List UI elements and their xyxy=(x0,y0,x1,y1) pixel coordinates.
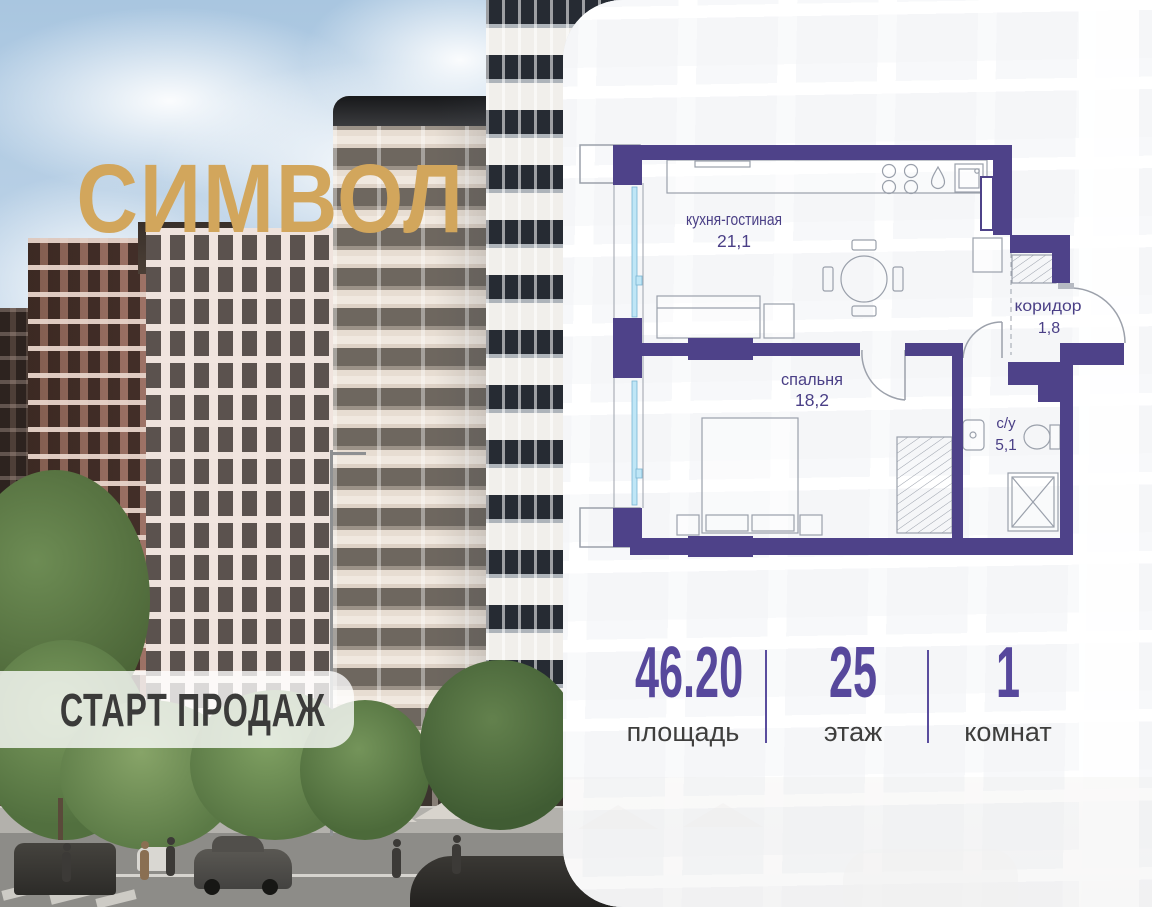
room-label-bathroom: с/у xyxy=(996,415,1016,432)
listing-card[interactable]: СИМВОЛ СТАРТ ПРОДАЖ xyxy=(0,0,1152,907)
stat-area-label: площадь xyxy=(603,717,763,748)
pedestrian xyxy=(452,844,461,874)
fridge-icon xyxy=(973,238,1002,272)
pedestrian xyxy=(392,848,401,878)
duct-shaft xyxy=(981,177,993,230)
stat-area-value: 46.20 xyxy=(635,645,731,701)
room-area-bathroom: 5,1 xyxy=(995,437,1017,454)
bed-icon xyxy=(702,418,798,533)
stat-rooms: 1 комнат xyxy=(928,645,1088,748)
nightstand-icon xyxy=(677,515,699,535)
start-sales-badge: СТАРТ ПРОДАЖ xyxy=(0,671,354,748)
stat-rooms-label: комнат xyxy=(928,717,1088,748)
room-label-bedroom: спальня xyxy=(781,371,843,389)
room-area-corridor: 1,8 xyxy=(1038,320,1060,337)
stat-floor: 25 этаж xyxy=(773,645,933,748)
pedestrian xyxy=(62,852,71,882)
floor-plan[interactable]: кухня-гостиная 21,1 спальня 18,2 коридор… xyxy=(578,138,1152,563)
stats-row: 46.20 площадь 25 этаж 1 комнат xyxy=(563,645,1123,755)
sofa-icon xyxy=(657,296,760,338)
sedan-car xyxy=(194,849,292,889)
room-area-bedroom: 18,2 xyxy=(795,390,829,410)
nightstand-icon xyxy=(800,515,822,535)
stat-floor-value: 25 xyxy=(805,645,901,701)
cooker-hood-icon xyxy=(695,161,750,167)
dining-table-icon xyxy=(841,256,887,302)
entrance-door-icon xyxy=(1073,288,1125,343)
hall-wardrobe-icon xyxy=(1012,255,1056,283)
pedestrian xyxy=(166,846,175,876)
stat-separator xyxy=(765,650,767,743)
start-sales-label: СТАРТ ПРОДАЖ xyxy=(60,683,326,737)
doors xyxy=(862,253,1125,400)
tree xyxy=(420,660,580,830)
bedroom-door-icon xyxy=(862,350,905,400)
toilet-icon xyxy=(1050,425,1060,449)
brand-logo: СИМВОЛ xyxy=(76,150,463,247)
side-table-icon xyxy=(764,304,794,338)
bath-sink-icon xyxy=(963,420,984,450)
stat-rooms-value: 1 xyxy=(960,645,1056,701)
tree-trunk xyxy=(58,798,63,840)
stat-area: 46.20 площадь xyxy=(603,645,763,748)
info-panel: кухня-гостиная 21,1 спальня 18,2 коридор… xyxy=(563,0,1152,907)
room-area-kitchen: 21,1 xyxy=(717,231,751,251)
wardrobe-icon xyxy=(897,437,952,533)
bathroom-door-icon xyxy=(963,322,1002,358)
room-label-corridor: коридор xyxy=(1015,298,1082,315)
stat-floor-label: этаж xyxy=(773,717,933,748)
pedestrian xyxy=(140,850,149,880)
room-label-kitchen: кухня-гостиная xyxy=(686,211,782,229)
